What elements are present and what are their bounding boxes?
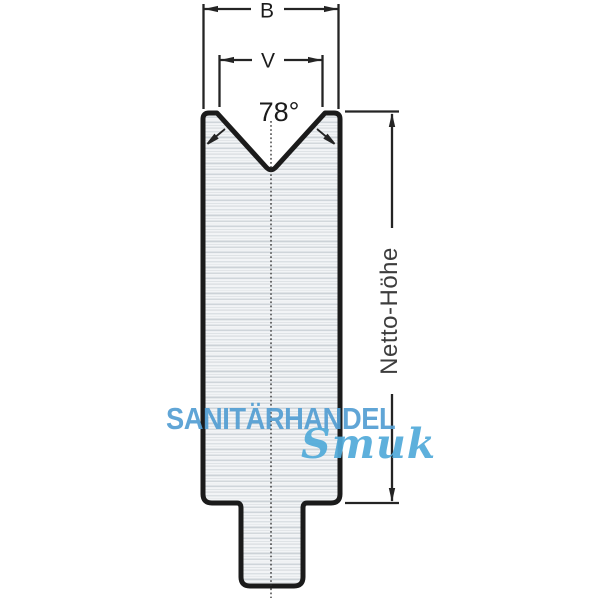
dim-height-label: Netto-Höhe — [376, 247, 403, 375]
dim-b-arrow-left — [204, 6, 218, 12]
dim-b-label: B — [260, 0, 274, 23]
die-technical-drawing: B V 78° Netto-Höhe — [0, 0, 600, 600]
dim-v-arrow-left — [220, 57, 234, 63]
drawing-canvas: B V 78° Netto-Höhe SANITÄRHAN — [0, 0, 600, 600]
dim-b-arrow-right — [324, 6, 338, 12]
dim-height-arrow-top — [389, 113, 395, 127]
angle-label: 78° — [259, 97, 300, 127]
dim-v-arrow-right — [308, 57, 322, 63]
dim-height-arrow-bottom — [389, 488, 395, 502]
dim-v-label: V — [261, 50, 275, 73]
